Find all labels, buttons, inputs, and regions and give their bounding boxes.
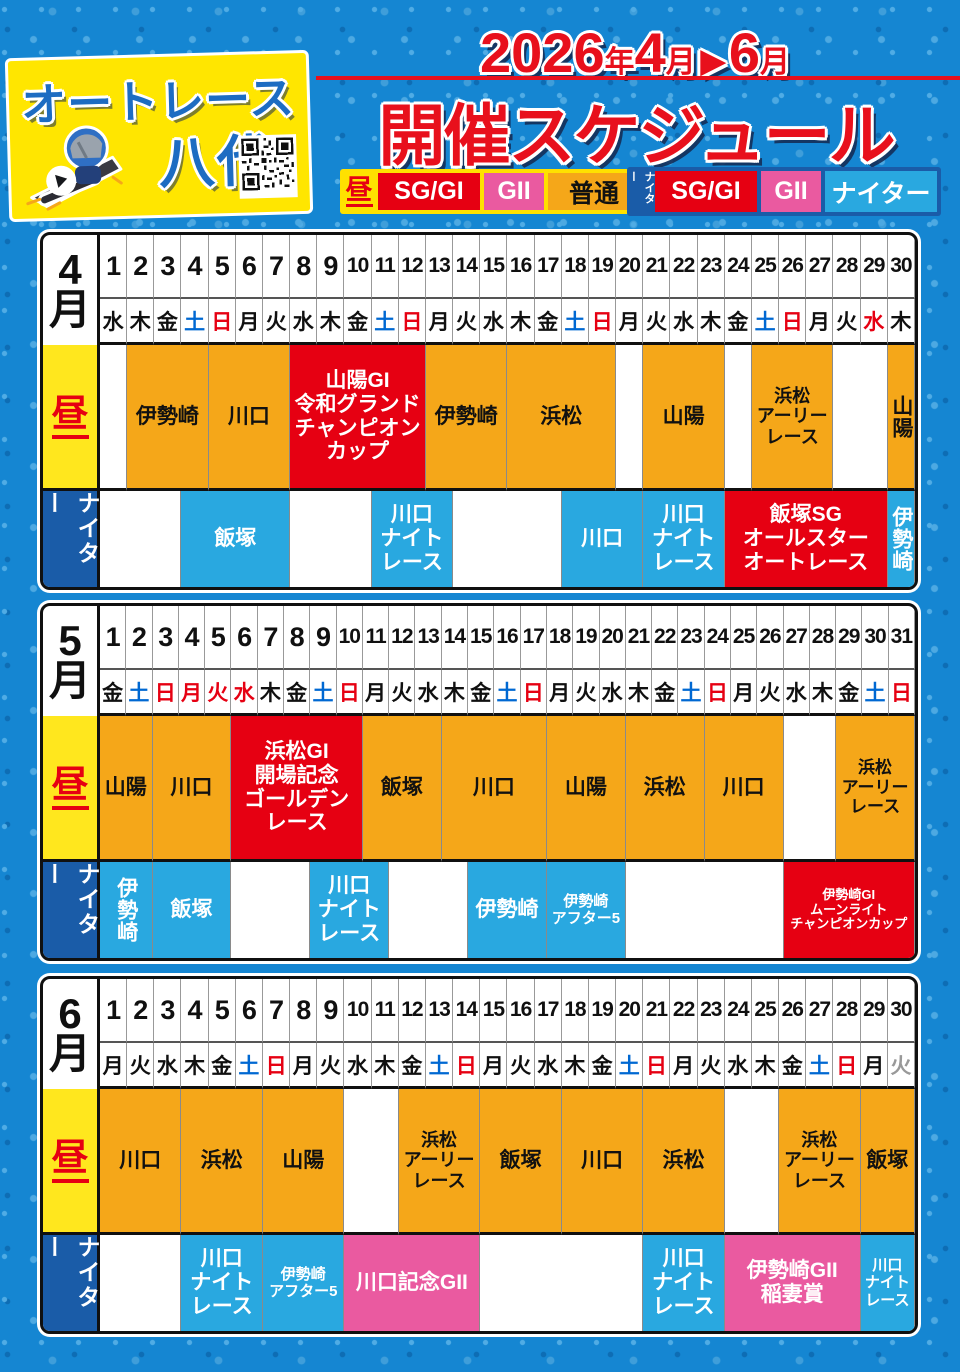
event-block-nt: 伊勢崎 bbox=[468, 862, 547, 958]
empty-cell bbox=[100, 345, 127, 491]
day-number-cell: 31 bbox=[889, 606, 915, 670]
day-number-cell: 19 bbox=[573, 606, 599, 670]
weekday-cell: 火 bbox=[573, 670, 599, 716]
day-number-cell: 10 bbox=[344, 979, 371, 1043]
event-block-n: 伊勢崎 bbox=[426, 345, 508, 491]
day-number-cell: 16 bbox=[507, 979, 534, 1043]
weekday-cell: 金 bbox=[154, 299, 181, 345]
event-block-n: 川口 bbox=[705, 716, 784, 862]
day-number-cell: 10 bbox=[344, 235, 371, 299]
weekday-cell: 月 bbox=[426, 299, 453, 345]
legend-item-day-sg: SG/GI bbox=[378, 173, 480, 210]
empty-cell bbox=[290, 491, 372, 587]
weekday-cell: 木 bbox=[258, 670, 284, 716]
empty-cell bbox=[480, 1235, 643, 1331]
day-number-cell: 12 bbox=[399, 979, 426, 1043]
weekday-cell: 金 bbox=[836, 670, 862, 716]
day-number-cell: 30 bbox=[862, 606, 888, 670]
day-number-cell: 25 bbox=[752, 979, 779, 1043]
day-number-cell: 30 bbox=[888, 979, 915, 1043]
event-block-nt: 伊勢崎 bbox=[100, 862, 153, 958]
period-month-unit1: 月 bbox=[666, 46, 696, 79]
day-number-cell: 14 bbox=[453, 235, 480, 299]
day-number-cell: 5 bbox=[209, 979, 236, 1043]
month-table-may: 5 月1金2土3日4月5火6水7木8金9土10日11月12火13水14木15金1… bbox=[40, 603, 918, 961]
night-row-label: ナイター bbox=[43, 491, 100, 587]
period-year: 2026 bbox=[480, 21, 605, 84]
weekday-cell: 金 bbox=[209, 1043, 236, 1089]
weekday-cell: 月 bbox=[731, 670, 757, 716]
weekday-cell: 月 bbox=[547, 670, 573, 716]
weekday-cell: 水 bbox=[290, 299, 317, 345]
weekday-cell: 水 bbox=[480, 299, 507, 345]
legend-item-day-g2: GII bbox=[484, 173, 544, 210]
day-number-cell: 4 bbox=[179, 606, 205, 670]
weekday-cell: 火 bbox=[757, 670, 783, 716]
schedule-poster: オートレース 八代 bbox=[0, 0, 960, 1372]
weekday-cell: 日 bbox=[589, 299, 616, 345]
empty-cell bbox=[100, 1235, 181, 1331]
period-month-to: 6 bbox=[729, 21, 760, 84]
event-block-n: 浜松 アーリー レース bbox=[779, 1089, 861, 1235]
day-number-cell: 8 bbox=[290, 979, 317, 1043]
day-number-cell: 17 bbox=[535, 979, 562, 1043]
day-number-cell: 28 bbox=[833, 979, 860, 1043]
event-block-n: 川口 bbox=[153, 716, 232, 862]
period-month-unit2: 月 bbox=[760, 46, 790, 79]
empty-cell bbox=[453, 491, 562, 587]
day-number-cell: 24 bbox=[705, 606, 731, 670]
day-number-cell: 5 bbox=[209, 235, 236, 299]
month-table-june: 6 月1月2火3水4木5金6土7日8月9火10水11木12金13土14日15月1… bbox=[40, 976, 918, 1334]
day-row-label: 昼 bbox=[43, 345, 100, 491]
night-row-label: ナイター bbox=[43, 1235, 100, 1331]
empty-cell bbox=[725, 1089, 779, 1235]
event-block-n: 浜松 bbox=[181, 1089, 263, 1235]
event-block-n: 川口 bbox=[442, 716, 547, 862]
weekday-cell: 月 bbox=[806, 299, 833, 345]
weekday-cell: 土 bbox=[372, 299, 399, 345]
weekday-cell: 月 bbox=[670, 1043, 697, 1089]
weekday-cell: 金 bbox=[725, 299, 752, 345]
event-block-n: 山陽 bbox=[547, 716, 626, 862]
day-number-cell: 23 bbox=[698, 235, 725, 299]
day-number-cell: 7 bbox=[258, 606, 284, 670]
weekday-cell: 水 bbox=[670, 299, 697, 345]
legend-item-night-sg: SG/GI bbox=[655, 171, 757, 212]
day-number-cell: 14 bbox=[453, 979, 480, 1043]
day-number-cell: 22 bbox=[652, 606, 678, 670]
day-number-cell: 20 bbox=[616, 979, 643, 1043]
day-number-cell: 28 bbox=[833, 235, 860, 299]
weekday-cell: 火 bbox=[888, 1043, 915, 1089]
weekday-cell: 日 bbox=[153, 670, 179, 716]
event-block-n: 川口 bbox=[209, 345, 291, 491]
weekday-cell: 日 bbox=[337, 670, 363, 716]
event-block-nt: 川口 ナイト レース bbox=[372, 491, 454, 587]
event-block-n: 浜松 アーリー レース bbox=[836, 716, 915, 862]
event-block-n: 浜松 アーリー レース bbox=[752, 345, 834, 491]
rider-mascot-icon bbox=[15, 116, 146, 217]
weekday-cell: 月 bbox=[100, 1043, 127, 1089]
event-block-n: 山陽 bbox=[100, 716, 153, 862]
day-number-cell: 25 bbox=[731, 606, 757, 670]
event-block-sg: 飯塚SG オールスター オートレース bbox=[725, 491, 888, 587]
weekday-cell: 火 bbox=[833, 299, 860, 345]
day-number-cell: 24 bbox=[725, 235, 752, 299]
weekday-cell: 金 bbox=[589, 1043, 616, 1089]
weekday-cell: 土 bbox=[862, 670, 888, 716]
period-year-unit: 年 bbox=[605, 46, 635, 79]
weekday-cell: 月 bbox=[363, 670, 389, 716]
weekday-cell: 火 bbox=[127, 1043, 154, 1089]
day-number-cell: 6 bbox=[236, 235, 263, 299]
event-block-n: 山陽 bbox=[643, 345, 725, 491]
month-label-june: 6 月 bbox=[43, 979, 100, 1089]
weekday-cell: 土 bbox=[678, 670, 704, 716]
weekday-cell: 木 bbox=[442, 670, 468, 716]
day-number-cell: 3 bbox=[153, 606, 179, 670]
day-number-cell: 26 bbox=[757, 606, 783, 670]
event-block-nt: 川口 ナイト レース bbox=[310, 862, 389, 958]
event-block-nt: 飯塚 bbox=[153, 862, 232, 958]
weekday-cell: 土 bbox=[806, 1043, 833, 1089]
event-block-nt: 川口 bbox=[562, 491, 644, 587]
day-number-cell: 18 bbox=[562, 979, 589, 1043]
day-number-cell: 13 bbox=[415, 606, 441, 670]
weekday-cell: 水 bbox=[784, 670, 810, 716]
day-number-cell: 28 bbox=[810, 606, 836, 670]
event-block-n: 川口 bbox=[100, 1089, 181, 1235]
day-number-cell: 10 bbox=[337, 606, 363, 670]
weekday-cell: 日 bbox=[705, 670, 731, 716]
event-block-nt: 伊勢崎 アフター5 bbox=[263, 1235, 345, 1331]
day-row-label: 昼 bbox=[43, 1089, 100, 1235]
event-block-nt: 川口 ナイト レース bbox=[643, 491, 725, 587]
event-block-nt: 川口 ナイト レース bbox=[181, 1235, 263, 1331]
day-number-cell: 26 bbox=[779, 979, 806, 1043]
day-number-cell: 4 bbox=[181, 979, 208, 1043]
weekday-cell: 火 bbox=[205, 670, 231, 716]
weekday-cell: 水 bbox=[231, 670, 257, 716]
event-block-n: 浜松 bbox=[507, 345, 616, 491]
empty-cell bbox=[784, 716, 837, 862]
weekday-cell: 土 bbox=[616, 1043, 643, 1089]
event-block-n: 伊勢崎 bbox=[127, 345, 209, 491]
weekday-cell: 金 bbox=[652, 670, 678, 716]
event-block-g2: 伊勢崎GII 稲妻賞 bbox=[725, 1235, 861, 1331]
day-number-cell: 24 bbox=[725, 979, 752, 1043]
day-number-cell: 13 bbox=[426, 979, 453, 1043]
empty-cell bbox=[725, 345, 752, 491]
weekday-cell: 木 bbox=[562, 1043, 589, 1089]
weekday-cell: 日 bbox=[643, 1043, 670, 1089]
weekday-cell: 月 bbox=[861, 1043, 888, 1089]
empty-cell bbox=[389, 862, 468, 958]
day-number-cell: 1 bbox=[100, 979, 127, 1043]
day-number-cell: 9 bbox=[317, 235, 344, 299]
weekday-cell: 木 bbox=[127, 299, 154, 345]
weekday-cell: 火 bbox=[263, 299, 290, 345]
weekday-cell: 水 bbox=[154, 1043, 181, 1089]
day-number-cell: 2 bbox=[127, 235, 154, 299]
weekday-cell: 木 bbox=[181, 1043, 208, 1089]
period-month-from: 4 bbox=[635, 21, 666, 84]
day-number-cell: 11 bbox=[372, 979, 399, 1043]
day-number-cell: 26 bbox=[779, 235, 806, 299]
day-number-cell: 15 bbox=[468, 606, 494, 670]
event-block-nt: 川口 ナイト レース bbox=[643, 1235, 725, 1331]
track-logo: オートレース 八代 bbox=[8, 53, 310, 219]
event-block-n: 浜松 アーリー レース bbox=[399, 1089, 481, 1235]
day-number-cell: 16 bbox=[494, 606, 520, 670]
legend-night-label: ナイター bbox=[631, 171, 651, 212]
day-number-cell: 17 bbox=[535, 235, 562, 299]
day-number-cell: 20 bbox=[616, 235, 643, 299]
weekday-cell: 水 bbox=[415, 670, 441, 716]
day-number-cell: 30 bbox=[888, 235, 915, 299]
empty-cell bbox=[100, 491, 181, 587]
weekday-cell: 火 bbox=[317, 1043, 344, 1089]
day-number-cell: 20 bbox=[600, 606, 626, 670]
weekday-cell: 水 bbox=[100, 299, 127, 345]
event-block-n: 浜松 bbox=[626, 716, 705, 862]
weekday-cell: 金 bbox=[399, 1043, 426, 1089]
month-table-april: 4 月1水2木3金4土5日6月7火8水9木10金11土12日13月14火15水1… bbox=[40, 232, 918, 590]
weekday-cell: 木 bbox=[507, 299, 534, 345]
qr-code bbox=[238, 134, 298, 199]
legend-day-group: 昼 SG/GIGII普通 bbox=[340, 169, 644, 214]
day-number-cell: 23 bbox=[698, 979, 725, 1043]
day-number-cell: 4 bbox=[181, 235, 208, 299]
weekday-cell: 金 bbox=[284, 670, 310, 716]
weekday-cell: 土 bbox=[752, 299, 779, 345]
event-block-n: 浜松 bbox=[643, 1089, 725, 1235]
day-number-cell: 22 bbox=[670, 235, 697, 299]
event-block-nt: 伊勢崎 アフター5 bbox=[547, 862, 626, 958]
event-block-n: 飯塚 bbox=[480, 1089, 562, 1235]
day-number-cell: 12 bbox=[389, 606, 415, 670]
weekday-cell: 火 bbox=[643, 299, 670, 345]
day-number-cell: 1 bbox=[100, 235, 127, 299]
weekday-cell: 火 bbox=[507, 1043, 534, 1089]
day-number-cell: 8 bbox=[284, 606, 310, 670]
weekday-cell: 土 bbox=[494, 670, 520, 716]
weekday-cell: 日 bbox=[833, 1043, 860, 1089]
day-number-cell: 12 bbox=[399, 235, 426, 299]
event-block-n: 山陽 bbox=[888, 345, 915, 491]
event-block-n: 飯塚 bbox=[861, 1089, 915, 1235]
weekday-cell: 月 bbox=[236, 299, 263, 345]
weekday-cell: 月 bbox=[179, 670, 205, 716]
day-number-cell: 13 bbox=[426, 235, 453, 299]
day-number-cell: 11 bbox=[372, 235, 399, 299]
empty-cell bbox=[626, 862, 784, 958]
weekday-cell: 金 bbox=[535, 299, 562, 345]
day-number-cell: 18 bbox=[562, 235, 589, 299]
weekday-cell: 金 bbox=[100, 670, 126, 716]
legend-item-night-g2: GII bbox=[761, 171, 821, 212]
weekday-cell: 木 bbox=[810, 670, 836, 716]
weekday-cell: 日 bbox=[521, 670, 547, 716]
day-number-cell: 29 bbox=[836, 606, 862, 670]
event-block-nt: 伊勢崎 bbox=[888, 491, 915, 587]
day-number-cell: 27 bbox=[784, 606, 810, 670]
day-number-cell: 19 bbox=[589, 979, 616, 1043]
empty-cell bbox=[344, 1089, 398, 1235]
day-number-cell: 2 bbox=[127, 979, 154, 1043]
weekday-cell: 日 bbox=[263, 1043, 290, 1089]
weekday-cell: 土 bbox=[562, 299, 589, 345]
day-number-cell: 2 bbox=[126, 606, 152, 670]
weekday-cell: 木 bbox=[888, 299, 915, 345]
weekday-cell: 土 bbox=[236, 1043, 263, 1089]
day-number-cell: 27 bbox=[806, 235, 833, 299]
weekday-cell: 日 bbox=[399, 299, 426, 345]
weekday-cell: 月 bbox=[290, 1043, 317, 1089]
weekday-cell: 火 bbox=[453, 299, 480, 345]
day-number-cell: 16 bbox=[507, 235, 534, 299]
event-block-g2: 川口記念GII bbox=[344, 1235, 480, 1331]
weekday-cell: 土 bbox=[426, 1043, 453, 1089]
day-number-cell: 5 bbox=[205, 606, 231, 670]
day-number-cell: 22 bbox=[670, 979, 697, 1043]
event-block-n: 川口 bbox=[562, 1089, 644, 1235]
weekday-cell: 日 bbox=[779, 299, 806, 345]
weekday-cell: 金 bbox=[344, 299, 371, 345]
day-number-cell: 15 bbox=[480, 235, 507, 299]
empty-cell bbox=[231, 862, 310, 958]
day-number-cell: 18 bbox=[547, 606, 573, 670]
day-number-cell: 9 bbox=[310, 606, 336, 670]
weekday-cell: 金 bbox=[779, 1043, 806, 1089]
day-number-cell: 3 bbox=[154, 979, 181, 1043]
weekday-cell: 金 bbox=[468, 670, 494, 716]
day-number-cell: 7 bbox=[263, 979, 290, 1043]
weekday-cell: 水 bbox=[600, 670, 626, 716]
weekday-cell: 水 bbox=[535, 1043, 562, 1089]
empty-cell bbox=[833, 345, 887, 491]
event-block-nt: 飯塚 bbox=[181, 491, 290, 587]
day-number-cell: 6 bbox=[236, 979, 263, 1043]
event-block-sg: 伊勢崎GI ムーンライト チャンピオンカップ bbox=[784, 862, 915, 958]
legend-day-label: 昼 bbox=[344, 173, 374, 210]
weekday-cell: 水 bbox=[725, 1043, 752, 1089]
weekday-cell: 土 bbox=[181, 299, 208, 345]
legend-night-group: ナイター SG/GIGIIナイター bbox=[627, 167, 941, 216]
weekday-cell: 火 bbox=[698, 1043, 725, 1089]
weekday-cell: 木 bbox=[372, 1043, 399, 1089]
day-number-cell: 14 bbox=[442, 606, 468, 670]
day-number-cell: 3 bbox=[154, 235, 181, 299]
day-number-cell: 27 bbox=[806, 979, 833, 1043]
day-number-cell: 19 bbox=[589, 235, 616, 299]
weekday-cell: 木 bbox=[698, 299, 725, 345]
arrow-icon: ▶ bbox=[700, 42, 724, 80]
month-label-may: 5 月 bbox=[43, 606, 100, 716]
day-number-cell: 15 bbox=[480, 979, 507, 1043]
weekday-cell: 木 bbox=[626, 670, 652, 716]
event-block-sg: 山陽GI 令和グランド チャンピオン カップ bbox=[290, 345, 426, 491]
day-number-cell: 21 bbox=[643, 235, 670, 299]
weekday-cell: 水 bbox=[861, 299, 888, 345]
day-number-cell: 17 bbox=[521, 606, 547, 670]
day-number-cell: 1 bbox=[100, 606, 126, 670]
day-number-cell: 11 bbox=[363, 606, 389, 670]
day-number-cell: 29 bbox=[861, 979, 888, 1043]
weekday-cell: 土 bbox=[126, 670, 152, 716]
day-number-cell: 21 bbox=[626, 606, 652, 670]
day-number-cell: 29 bbox=[861, 235, 888, 299]
title-divider bbox=[316, 76, 960, 80]
weekday-cell: 水 bbox=[344, 1043, 371, 1089]
weekday-cell: 日 bbox=[453, 1043, 480, 1089]
event-block-sg: 浜松GI 開場記念 ゴールデン レース bbox=[231, 716, 362, 862]
weekday-cell: 火 bbox=[389, 670, 415, 716]
page-title: 開催スケジュール bbox=[316, 82, 956, 179]
month-label-april: 4 月 bbox=[43, 235, 100, 345]
day-number-cell: 9 bbox=[317, 979, 344, 1043]
empty-cell bbox=[616, 345, 643, 491]
day-number-cell: 25 bbox=[752, 235, 779, 299]
legend-item-night-nt: ナイター bbox=[825, 171, 937, 212]
weekday-cell: 木 bbox=[317, 299, 344, 345]
event-block-nt: 川口 ナイト レース bbox=[861, 1235, 915, 1331]
night-row-label: ナイター bbox=[43, 862, 100, 958]
day-number-cell: 23 bbox=[678, 606, 704, 670]
day-number-cell: 8 bbox=[290, 235, 317, 299]
weekday-cell: 日 bbox=[889, 670, 915, 716]
weekday-cell: 月 bbox=[616, 299, 643, 345]
day-number-cell: 21 bbox=[643, 979, 670, 1043]
weekday-cell: 木 bbox=[752, 1043, 779, 1089]
weekday-cell: 土 bbox=[310, 670, 336, 716]
day-number-cell: 6 bbox=[231, 606, 257, 670]
day-number-cell: 7 bbox=[263, 235, 290, 299]
event-block-n: 飯塚 bbox=[363, 716, 442, 862]
event-block-n: 山陽 bbox=[263, 1089, 345, 1235]
day-row-label: 昼 bbox=[43, 716, 100, 862]
weekday-cell: 日 bbox=[209, 299, 236, 345]
weekday-cell: 月 bbox=[480, 1043, 507, 1089]
